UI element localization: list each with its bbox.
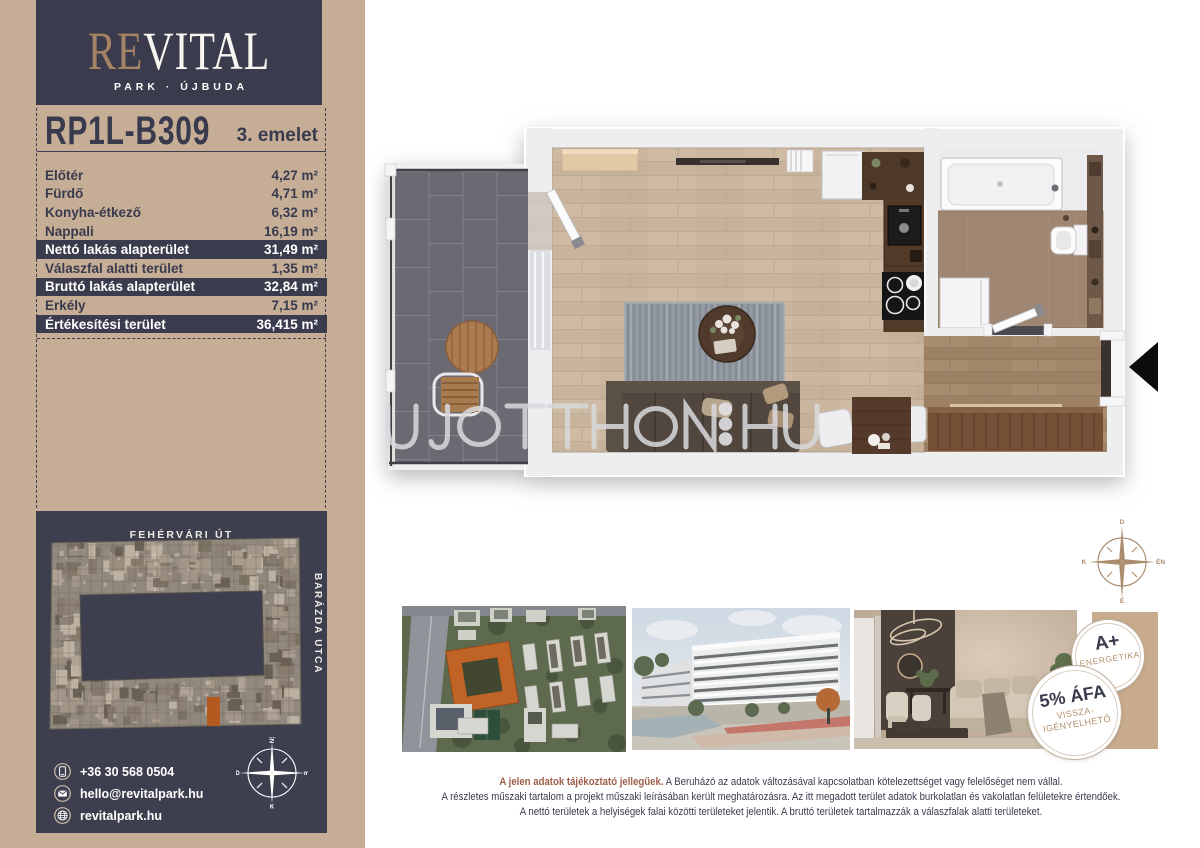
svg-text:m: m	[304, 771, 308, 777]
svg-text:D: D	[236, 771, 240, 777]
svg-text:K: K	[1082, 559, 1087, 566]
svg-text:D: D	[1120, 519, 1125, 526]
svg-text:É: É	[1120, 596, 1125, 605]
svg-text:K: K	[270, 805, 275, 810]
svg-text:ÉN: ÉN	[268, 737, 276, 743]
svg-text:ÉN: ÉN	[1156, 557, 1165, 566]
